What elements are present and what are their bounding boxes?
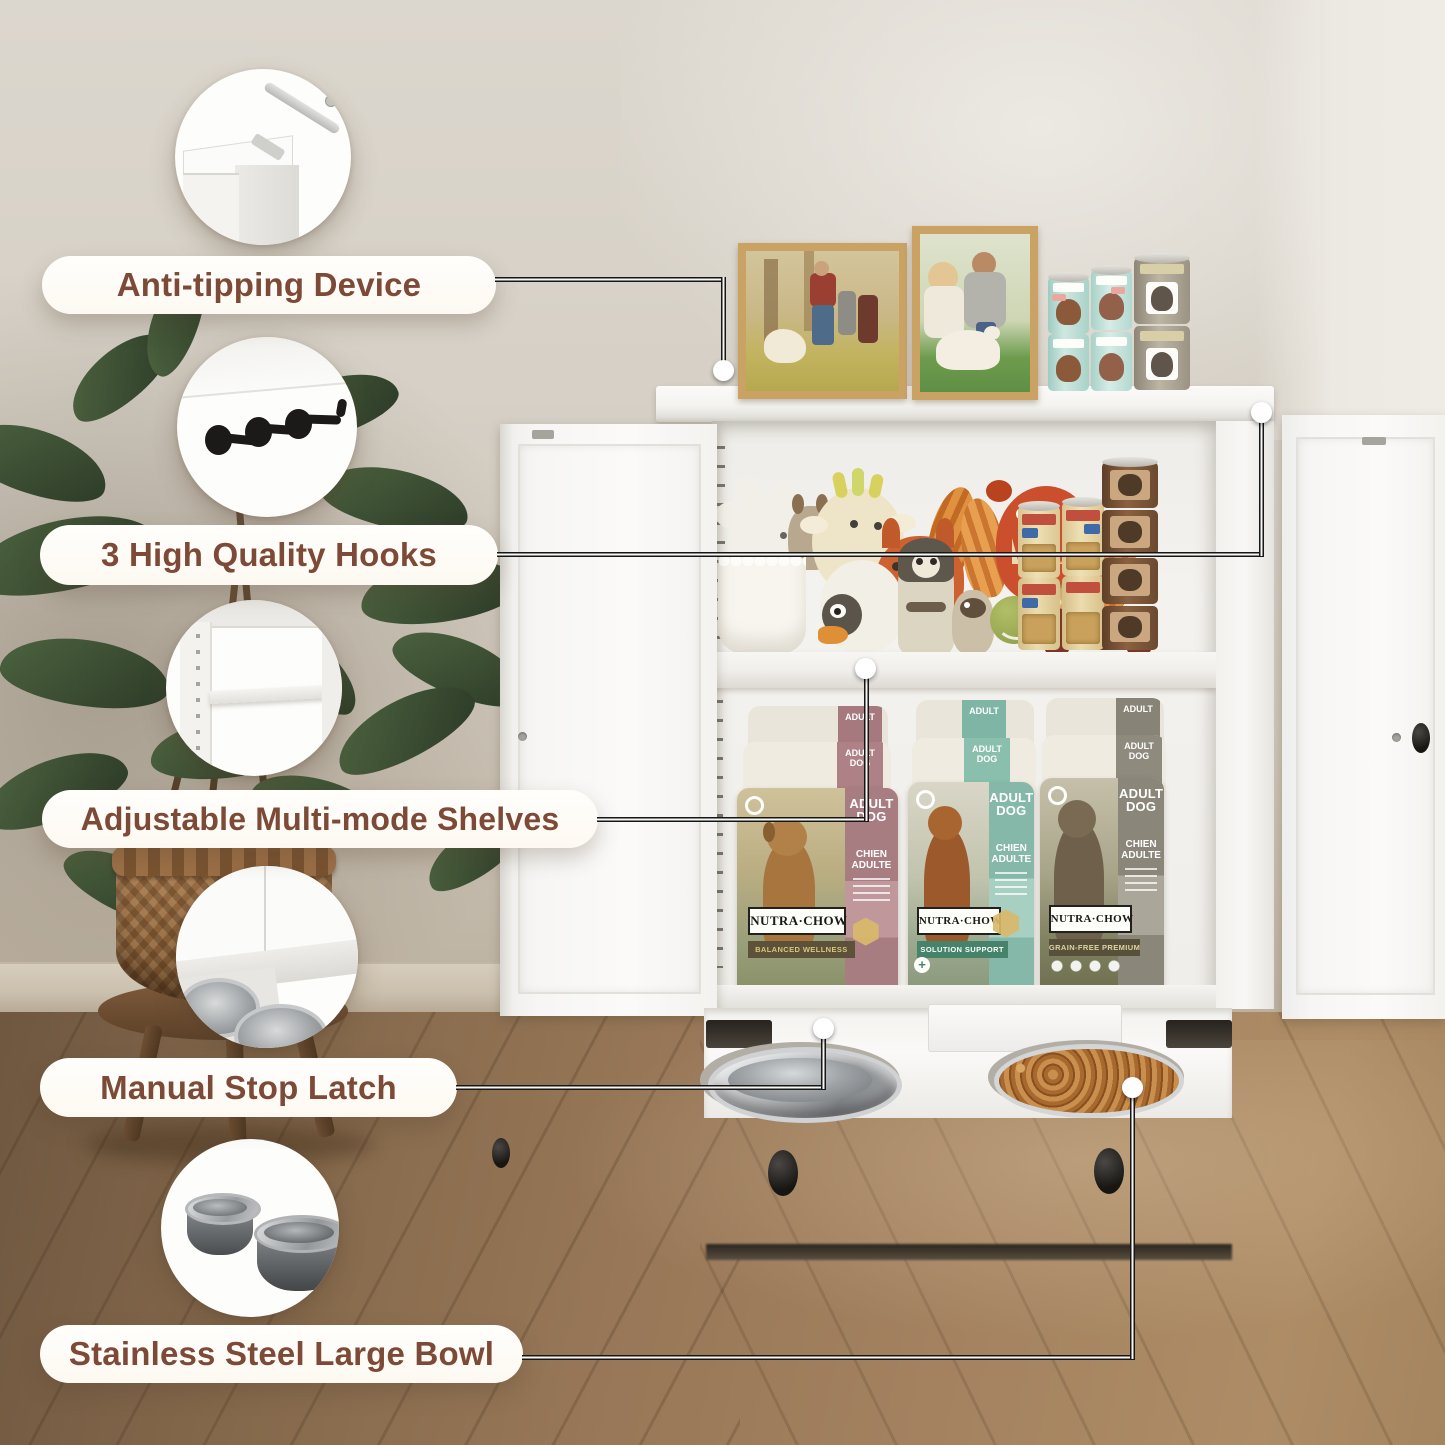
right-door-open[interactable]: [1282, 415, 1445, 1019]
callout-label-anti-tip: Anti-tipping Device: [42, 256, 496, 314]
bag-variant-fr-label: CHIEN ADULTE: [989, 843, 1034, 865]
bag-fine-print: [853, 878, 890, 904]
callout-label-latch: Manual Stop Latch: [40, 1058, 457, 1117]
anchor-dot-shelves: [855, 658, 876, 679]
callout-label-hooks: 3 High Quality Hooks: [40, 525, 498, 585]
picture-frame-family-park: [738, 243, 907, 399]
bag-variant-label: ADULT DOG: [845, 748, 875, 768]
ferret-plush: [952, 590, 994, 654]
anchor-dot-latch: [813, 1018, 834, 1039]
kibble-bowl: [994, 1044, 1184, 1118]
leader-line-latch: [821, 1036, 826, 1089]
bag-brand-label: NUTRA·CHOW: [917, 907, 1002, 935]
stainless-bowl-inner: [728, 1058, 872, 1102]
bag-variant-label: ADULT DOG: [989, 782, 1034, 817]
callout-thumb-anti-tip: [175, 69, 351, 245]
dog-food-bag-grain-free: ADULT DOG CHIEN ADULTE NUTRA·CHOW GRAIN-…: [1040, 778, 1164, 990]
leader-line-anti-tip: [721, 277, 726, 365]
bag-logo-icon: [745, 796, 764, 815]
callout-thumb-shelves: [166, 600, 342, 776]
leader-line-shelves: [864, 676, 869, 821]
bag-logo-icon: [916, 790, 935, 809]
door-edge: [500, 424, 512, 1016]
middle-shelf-board: [712, 652, 1216, 688]
plus-icon: +: [914, 957, 930, 973]
leader-line-latch: [456, 1085, 826, 1090]
leader-line-bowl: [522, 1355, 1135, 1360]
bag-line-label: SOLUTION SUPPORT: [917, 941, 1008, 958]
door-screw: [518, 732, 527, 741]
bag-brand-label: NUTRA·CHOW: [748, 907, 845, 935]
bag-variant-label: ADULT DOG: [1118, 778, 1164, 813]
bag-variant-label: ADULT DOG: [1124, 741, 1154, 761]
bag-fine-print: [995, 872, 1027, 898]
cabinet-right-stile: [1216, 421, 1274, 1009]
door-hinge: [532, 430, 554, 439]
callout-thumb-latch: [176, 866, 358, 1048]
leader-line-bowl: [1130, 1095, 1135, 1359]
bag-fine-print: [1125, 868, 1157, 894]
left-door-panel: [518, 444, 701, 994]
drawer-knob-right[interactable]: [1094, 1148, 1124, 1194]
bag-variant-label: ADULT: [1123, 704, 1153, 714]
left-door-open[interactable]: [500, 424, 717, 1016]
bag-stripe: ADULT DOG CHIEN ADULTE: [989, 782, 1034, 992]
product-infographic: ADULT ADULT DOG ADULT ADULT DOG ADULT AD…: [0, 0, 1445, 1445]
callout-label-bowl: Stainless Steel Large Bowl: [40, 1325, 523, 1383]
bag-line-label: BALANCED WELLNESS: [748, 941, 854, 958]
bag-brand-label: NUTRA·CHOW: [1049, 905, 1132, 933]
leader-line-anti-tip: [495, 277, 726, 282]
drawer-under-shadow: [706, 1244, 1232, 1260]
leader-line-hooks: [1259, 420, 1264, 556]
callout-thumb-hooks: [177, 337, 357, 517]
bag-variant-label: ADULT: [845, 712, 875, 722]
bag-variant-label: ADULT DOG: [972, 744, 1002, 764]
bag-line-label: GRAIN-FREE PREMIUM: [1049, 939, 1141, 956]
bag-logo-icon: [1048, 786, 1067, 805]
feature-circles-row: [1050, 959, 1126, 973]
anchor-dot-bowl: [1122, 1077, 1143, 1098]
anchor-dot-anti-tip: [713, 360, 734, 381]
drawer-knob-left[interactable]: [768, 1150, 798, 1196]
dog-food-bag-solution-support: ADULT DOG CHIEN ADULTE NUTRA·CHOW SOLUTI…: [908, 782, 1034, 992]
leader-line-shelves: [597, 817, 869, 822]
right-door-knob[interactable]: [1412, 723, 1430, 753]
anchor-dot-hooks: [1251, 402, 1272, 423]
door-screw: [1392, 733, 1401, 742]
callout-thumb-bowls: [161, 1139, 339, 1317]
door-hinge: [1362, 437, 1386, 445]
left-door-knob[interactable]: [492, 1138, 510, 1168]
right-door-panel: [1296, 437, 1435, 995]
goose-plush: [820, 560, 904, 652]
leader-line-hooks: [497, 552, 1264, 557]
bag-variant-fr-label: CHIEN ADULTE: [1118, 839, 1164, 861]
bag-variant-label: ADULT: [969, 706, 999, 716]
deck-slot-right: [1166, 1020, 1232, 1048]
bag-variant-fr-label: CHIEN ADULTE: [845, 849, 898, 871]
picture-frame-couple-dog: [912, 226, 1038, 400]
callout-label-shelves: Adjustable Multi-mode Shelves: [42, 790, 598, 848]
white-storage-basket: [718, 556, 806, 654]
